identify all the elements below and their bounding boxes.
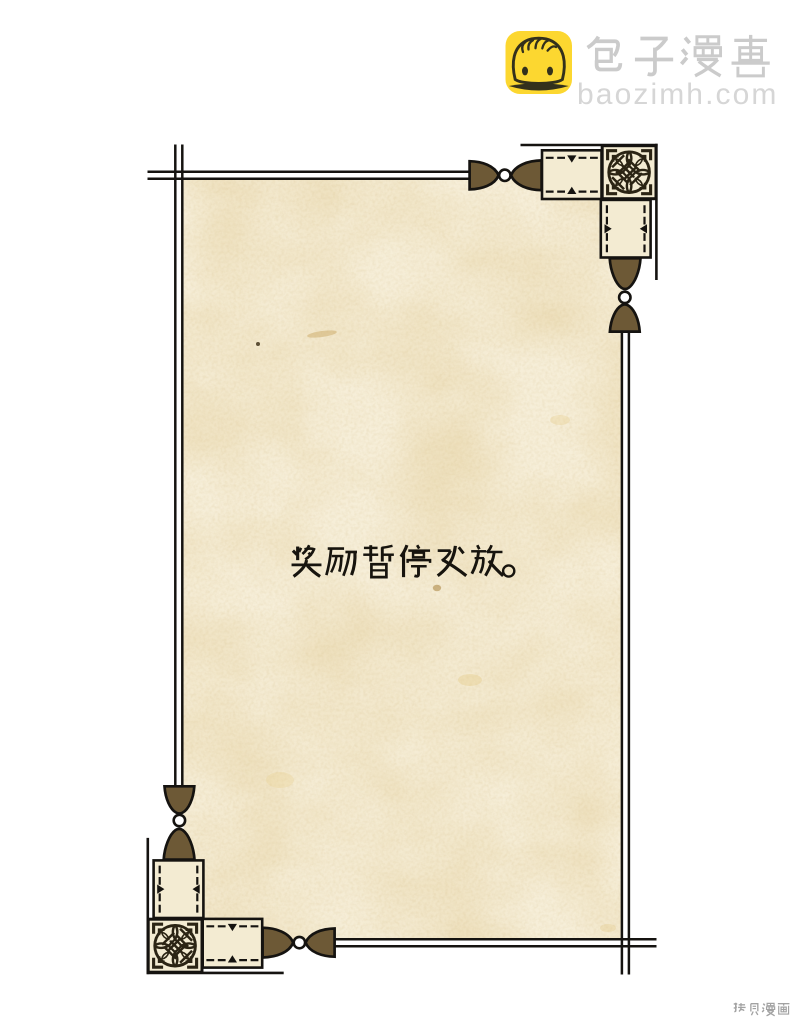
svg-text:baozimh.com: baozimh.com	[577, 78, 779, 111]
